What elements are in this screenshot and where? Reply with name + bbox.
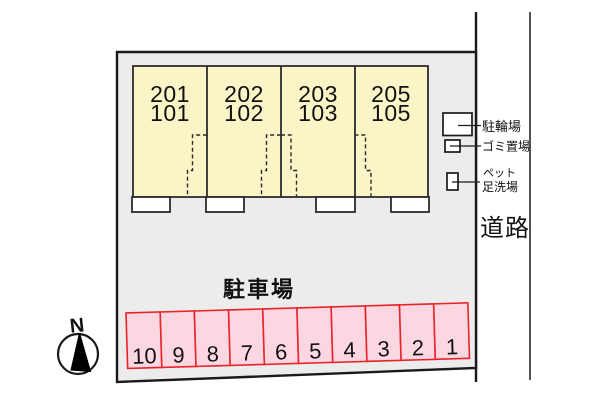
bicycle-parking-label: 駐輪場 xyxy=(482,119,521,134)
unit-label-1: 201101 xyxy=(150,81,190,126)
parking-space-number: 8 xyxy=(206,341,219,366)
pet-wash-label-line2: 足洗場 xyxy=(482,180,518,194)
unit-1-lower: 101 xyxy=(150,100,190,126)
site-plan-diagram: 201101 202102 203103 205105 駐輪場 ゴミ置場 ペット… xyxy=(0,0,600,400)
parking-space-number: 9 xyxy=(172,342,185,367)
entrance-porch xyxy=(132,197,170,212)
garbage-area-label: ゴミ置場 xyxy=(482,139,530,154)
unit-3-lower: 103 xyxy=(298,100,338,126)
parking-lot: 10 9 8 7 6 5 4 3 2 1 xyxy=(126,303,470,369)
bicycle-parking-box xyxy=(443,113,472,136)
unit-4-lower: 105 xyxy=(371,100,411,126)
compass-north-label: N xyxy=(69,314,86,337)
parking-space-number: 4 xyxy=(343,337,356,362)
entrance-porch xyxy=(206,197,244,212)
road-label: 道路 xyxy=(480,215,530,242)
unit-label-4: 205105 xyxy=(371,81,411,126)
parking-space-number: 2 xyxy=(411,335,424,360)
parking-space-number: 7 xyxy=(240,340,253,365)
parking-space-number: 6 xyxy=(275,339,288,364)
building: 201101 202102 203103 205105 xyxy=(132,66,429,212)
pet-wash-label-line1: ペット xyxy=(483,168,516,180)
parking-space-number: 1 xyxy=(446,334,459,359)
entrance-porch xyxy=(316,197,355,212)
parking-space-number: 3 xyxy=(377,336,390,361)
parking-lot-label: 駐車場 xyxy=(223,277,295,302)
unit-label-2: 202102 xyxy=(224,81,264,126)
parking-space-number: 10 xyxy=(132,343,157,369)
unit-label-3: 203103 xyxy=(298,81,338,126)
entrance-porch xyxy=(391,197,429,212)
unit-2-lower: 102 xyxy=(224,100,264,126)
site-plan-svg: 201101 202102 203103 205105 駐輪場 ゴミ置場 ペット… xyxy=(0,0,600,400)
parking-space-number: 5 xyxy=(309,338,322,363)
